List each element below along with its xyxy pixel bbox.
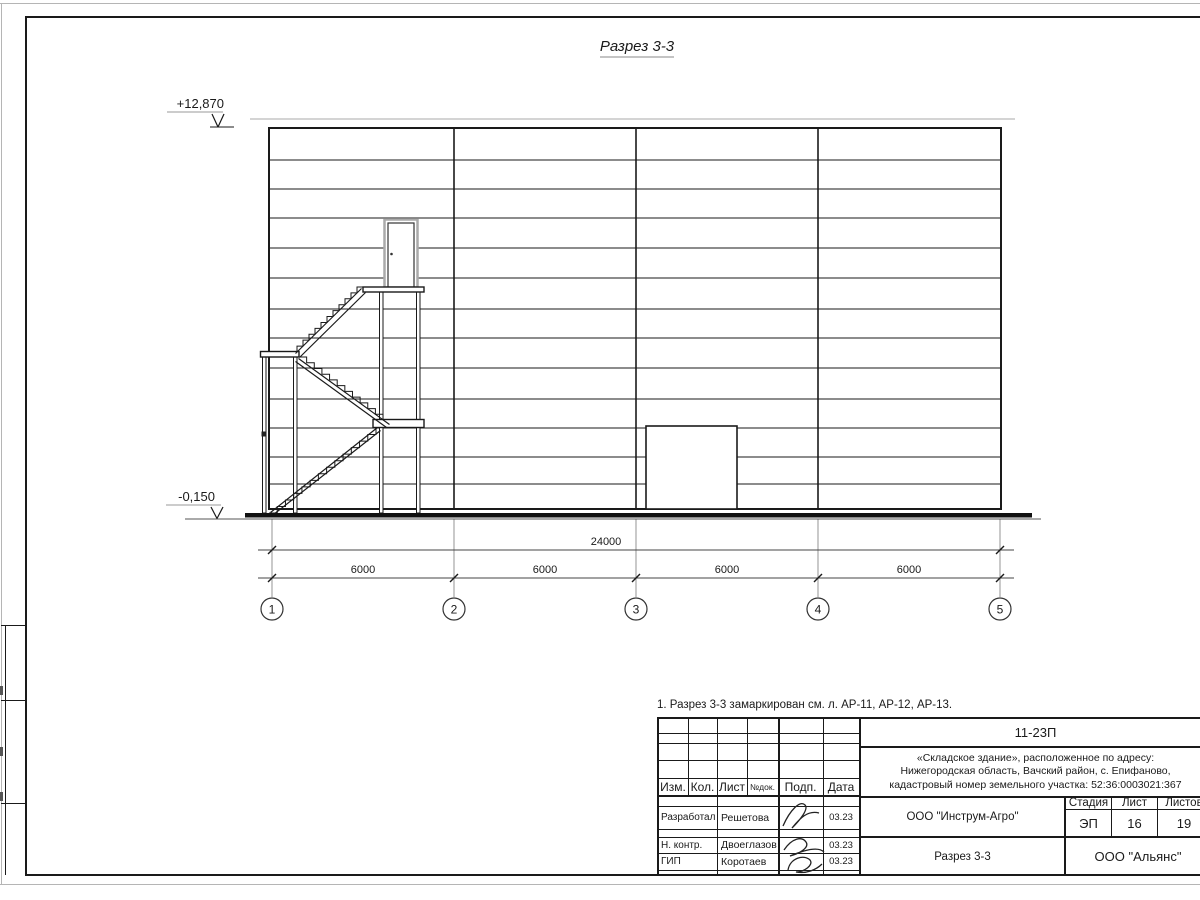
tb-row-date: 03.23	[823, 853, 859, 870]
tb-col-ndok: №док.	[747, 778, 778, 795]
axis-bubble-2: 2	[451, 603, 458, 617]
connection-plate	[262, 432, 267, 437]
paper-edge-top	[0, 3, 1200, 4]
tb-row-role: ГИП	[661, 853, 716, 870]
tb-address-line: «Складское здание», расположенное по адр…	[917, 752, 1154, 766]
strip-mark	[0, 792, 3, 801]
tb-developer: ООО "Инструм-Агро"	[861, 797, 1064, 836]
tb-col-kol: Кол.	[688, 778, 717, 795]
dim-segment-label: 6000	[533, 564, 557, 576]
tb-sheet-label: Лист	[1112, 797, 1157, 809]
tb-line	[658, 870, 859, 871]
axis-bubble-4: 4	[815, 603, 822, 617]
tb-line	[658, 733, 859, 734]
level-bottom-label: -0,150	[178, 489, 215, 504]
axis-bubble-3: 3	[633, 603, 640, 617]
axis-bubbles: 1 2 3 4 5	[261, 598, 1011, 620]
tb-row-date: 03.23	[823, 837, 859, 853]
dim-segment-label: 6000	[897, 564, 921, 576]
strip-mark	[0, 686, 3, 695]
tb-sheet-title: Разрез 3-3	[861, 838, 1064, 875]
axis-extension-lines	[272, 520, 1000, 598]
strip-divider	[1, 700, 26, 701]
building-wall	[250, 119, 1015, 509]
strip-mark	[0, 747, 3, 756]
strip-divider	[1, 803, 26, 804]
tb-row-role: Н. контр.	[661, 837, 716, 853]
landing-top	[363, 287, 424, 292]
door	[385, 220, 418, 288]
level-mark-bottom: -0,150	[166, 489, 223, 519]
tb-doc-number: 11-23П	[861, 718, 1200, 746]
tb-line	[658, 829, 859, 830]
drawing-sheet: Разрез 3-3 +12,870	[0, 0, 1200, 900]
tb-col-podp: Подп.	[778, 778, 823, 795]
paper-edge-bottom	[0, 884, 1200, 885]
tb-line	[658, 795, 859, 797]
section-drawing: Разрез 3-3 +12,870	[0, 0, 1200, 690]
tb-object-address: «Складское здание», расположенное по адр…	[861, 748, 1200, 796]
tb-sheets-value: 19	[1158, 810, 1200, 836]
tb-row-name: Решетова	[721, 806, 777, 829]
level-top-label: +12,870	[177, 96, 224, 111]
tb-stage-label: Стадия	[1066, 797, 1111, 809]
dim-segment-label: 6000	[351, 564, 375, 576]
door-knob-icon	[390, 253, 393, 256]
strip-line	[5, 625, 6, 875]
signature-1	[780, 798, 822, 832]
tb-row-date: 03.23	[823, 806, 859, 829]
axis-bubble-5: 5	[997, 603, 1004, 617]
tb-company: ООО "Альянс"	[1066, 838, 1200, 875]
tb-address-line: кадастровый номер земельного участка: 52…	[889, 779, 1181, 793]
level-mark-top: +12,870	[167, 96, 234, 127]
tb-sheet-value: 16	[1112, 810, 1157, 836]
drawing-title: Разрез 3-3	[600, 38, 675, 55]
tb-line	[658, 760, 859, 761]
frame-left	[25, 16, 27, 876]
signature-2	[780, 836, 828, 878]
note-text: 1. Разрез 3-3 замаркирован см. л. АР-11,…	[657, 698, 952, 712]
tb-col-data: Дата	[823, 778, 859, 795]
ground-line	[185, 513, 1041, 519]
axis-bubble-1: 1	[269, 603, 276, 617]
tb-address-line: Нижегородская область, Вачский район, с.…	[900, 765, 1170, 779]
tb-row-name: Коротаев	[721, 853, 777, 870]
tb-sheets-label: Листов	[1158, 797, 1200, 809]
gate-opening	[646, 426, 737, 509]
dim-segment-label: 6000	[715, 564, 739, 576]
landing-mid	[261, 352, 300, 358]
strip-divider	[1, 625, 26, 626]
tb-line	[658, 743, 859, 744]
tb-col-izm: Изм.	[658, 778, 688, 795]
frame-top	[26, 16, 1200, 18]
tb-col-list: Лист	[717, 778, 747, 795]
tb-row-name: Двоеглазов	[721, 837, 777, 853]
tb-stage-value: ЭП	[1066, 810, 1111, 836]
dim-total-label: 24000	[591, 536, 622, 548]
tb-row-role: Разработал	[661, 806, 716, 829]
